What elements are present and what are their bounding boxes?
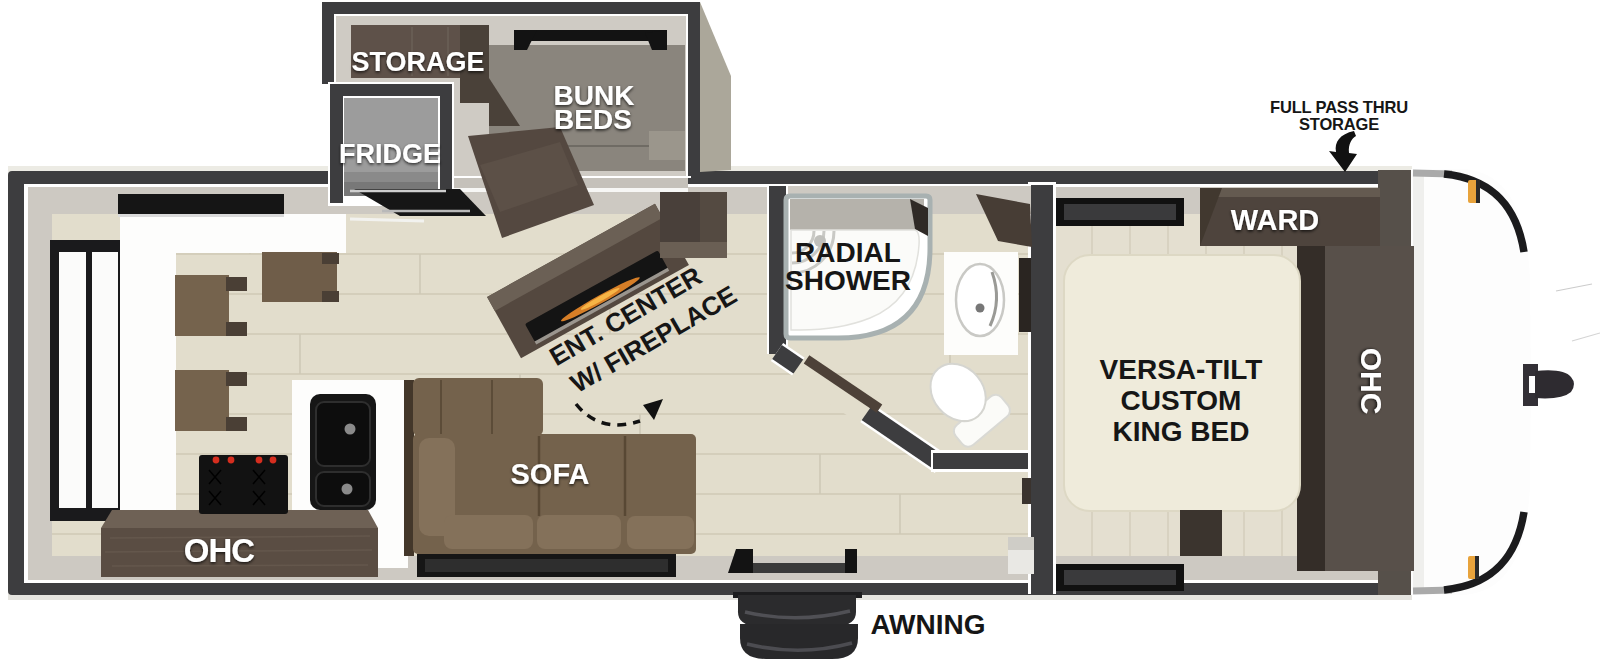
svg-text:RADIAL: RADIAL xyxy=(795,237,901,268)
svg-text:STORAGE: STORAGE xyxy=(1299,115,1379,133)
svg-text:SOFA: SOFA xyxy=(511,458,590,490)
svg-text:BEDS: BEDS xyxy=(554,104,632,135)
svg-text:AWNING: AWNING xyxy=(870,609,985,640)
svg-text:SHOWER: SHOWER xyxy=(785,265,911,296)
svg-text:VERSA-TILT: VERSA-TILT xyxy=(1100,354,1263,385)
svg-text:FRIDGE: FRIDGE xyxy=(339,139,441,169)
svg-text:FULL PASS THRU: FULL PASS THRU xyxy=(1270,98,1408,116)
svg-text:OHC: OHC xyxy=(1355,348,1388,415)
svg-text:CUSTOM: CUSTOM xyxy=(1121,385,1242,416)
svg-text:OHC: OHC xyxy=(184,532,255,569)
svg-text:WARD: WARD xyxy=(1231,204,1320,236)
svg-text:KING BED: KING BED xyxy=(1113,416,1250,447)
svg-text:STORAGE: STORAGE xyxy=(351,47,484,77)
